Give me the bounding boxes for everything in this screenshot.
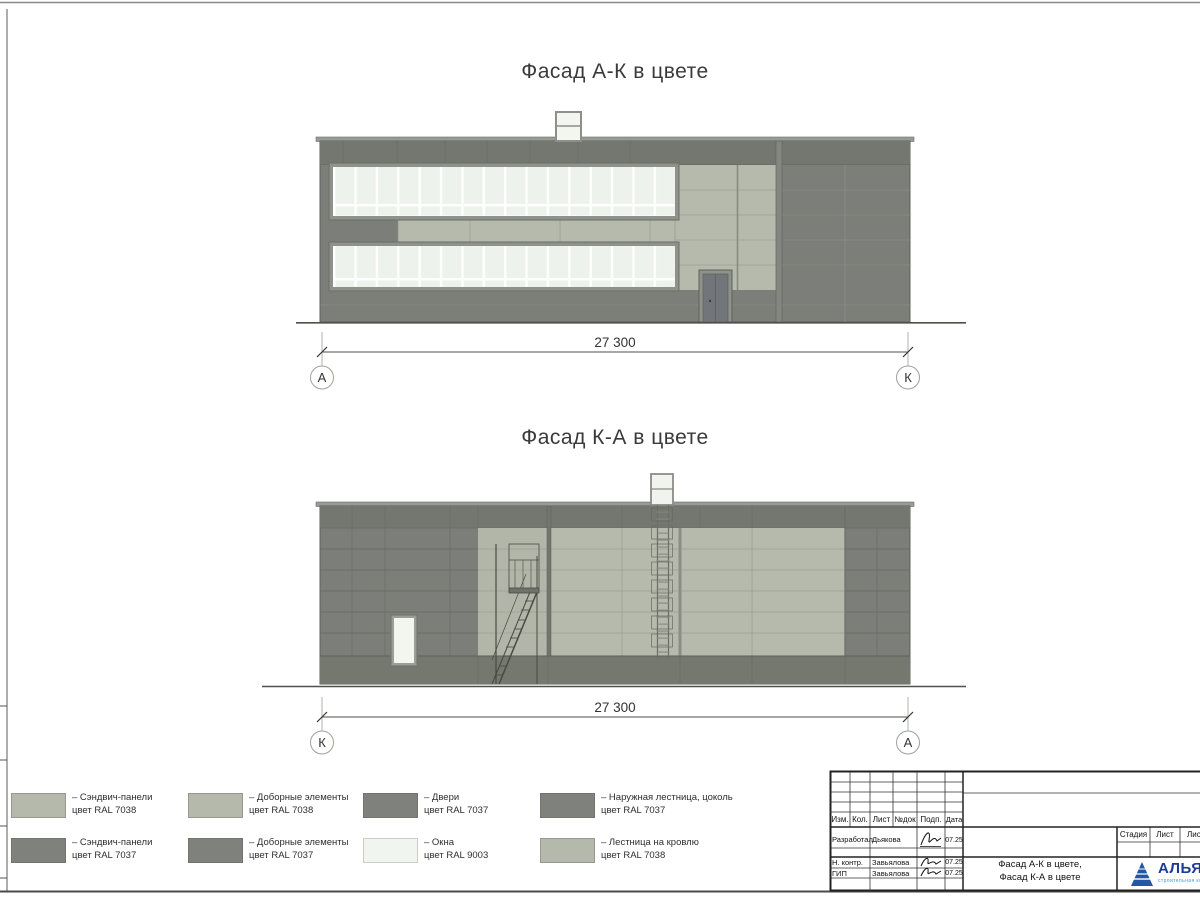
- legend-label-line1: – Окна: [424, 836, 488, 849]
- company-name: АЛЬЯНС: [1158, 860, 1200, 877]
- facade1-top-band: [320, 141, 910, 165]
- tb-name-developer: Дьякова: [872, 835, 901, 844]
- facade-2-drawing: [262, 474, 966, 687]
- drawing-sheet: 27 300 А К: [0, 0, 1200, 900]
- legend-label: – Окнацвет RAL 9003: [424, 836, 488, 862]
- legend-label: – Дверицвет RAL 7037: [424, 791, 488, 817]
- facade1-lower-window: [329, 242, 679, 291]
- legend-label-line2: цвет RAL 9003: [424, 849, 488, 862]
- tb-drawing-title-line1: Фасад А-К в цвете,: [963, 859, 1117, 870]
- tb-name-ncontrol: Завьялова: [872, 858, 909, 867]
- facade2-dimension: 27 300 К А: [311, 697, 920, 754]
- tb-role-gip: ГИП: [832, 869, 847, 878]
- facade1-title: Фасад А-К в цвете: [320, 60, 910, 84]
- signature-icon: [920, 833, 941, 876]
- facade1-column-strip: [776, 141, 782, 322]
- legend-label: – Доборные элементыцвет RAL 7037: [249, 836, 348, 862]
- tb-name-gip: Завьялова: [872, 869, 909, 878]
- tb-drawing-title-line2: Фасад К-А в цвете: [963, 872, 1117, 883]
- legend-label: – Лестница на кровлюцвет RAL 7038: [601, 836, 699, 862]
- facade-1-drawing: [296, 112, 966, 323]
- tb-col-izm: Изм.: [830, 815, 850, 824]
- tb-sheet-label: Лист: [1150, 830, 1180, 839]
- legend-label-line1: – Лестница на кровлю: [601, 836, 699, 849]
- tb-role-ncontrol: Н. контр.: [832, 858, 863, 867]
- company-logo-icon: [1131, 862, 1153, 886]
- legend-label-line1: – Наружная лестница, цоколь: [601, 791, 733, 804]
- tb-col-ndok: №док: [893, 815, 917, 824]
- legend-label-line2: цвет RAL 7038: [72, 804, 152, 817]
- facade1-upper-window: [329, 163, 679, 220]
- legend-swatch: [11, 793, 66, 818]
- tb-col-podp: Подп.: [917, 815, 945, 824]
- tb-date-gip: 07.25: [945, 870, 963, 877]
- legend-swatch: [363, 838, 418, 863]
- legend-label: – Сэндвич-панелицвет RAL 7038: [72, 791, 152, 817]
- legend-label-line2: цвет RAL 7037: [249, 849, 348, 862]
- tb-date-ncontrol: 07.25: [945, 859, 963, 866]
- legend-label-line1: – Сэндвич-панели: [72, 836, 152, 849]
- fold-marks: [0, 706, 7, 878]
- facade2-top-band: [320, 506, 910, 528]
- legend-label-line2: цвет RAL 7038: [601, 849, 699, 862]
- axis-letter-a2: А: [904, 735, 913, 750]
- tb-col-kol: Кол.: [850, 815, 870, 824]
- facade1-roof-hatch: [556, 112, 581, 141]
- legend-swatch: [540, 838, 595, 863]
- legend-label-line2: цвет RAL 7038: [249, 804, 348, 817]
- legend-label-line2: цвет RAL 7037: [601, 804, 733, 817]
- facade2-dim-label: 27 300: [594, 700, 635, 715]
- axis-letter-a1: А: [318, 370, 327, 385]
- axis-letter-k1: К: [904, 370, 912, 385]
- facade1-mid-band: [398, 218, 675, 243]
- legend-swatch: [540, 793, 595, 818]
- legend-label-line1: – Двери: [424, 791, 488, 804]
- axis-letter-k2: К: [318, 735, 326, 750]
- tb-role-developer: Разработал: [832, 835, 873, 844]
- drawing-canvas: 27 300 А К: [0, 0, 1200, 900]
- company-subtitle: строительная компания: [1158, 878, 1200, 884]
- facade2-title: Фасад К-А в цвете: [320, 426, 910, 450]
- facade1-dimension: 27 300 А К: [311, 332, 920, 389]
- tb-sheets-label: Листов: [1180, 830, 1200, 839]
- legend-label: – Наружная лестница, цокольцвет RAL 7037: [601, 791, 733, 817]
- legend-label-line2: цвет RAL 7037: [424, 804, 488, 817]
- tb-col-data: Дата: [945, 815, 963, 824]
- facade1-door: [699, 270, 732, 322]
- legend-label: – Сэндвич-панелицвет RAL 7037: [72, 836, 152, 862]
- legend-swatch: [188, 838, 243, 863]
- tb-date-developer: 07.25: [945, 837, 963, 844]
- legend-label-line1: – Доборные элементы: [249, 836, 348, 849]
- facade1-dim-label: 27 300: [594, 335, 635, 350]
- legend-label-line2: цвет RAL 7037: [72, 849, 152, 862]
- legend-label-line1: – Доборные элементы: [249, 791, 348, 804]
- legend-swatch: [11, 838, 66, 863]
- legend-swatch: [188, 793, 243, 818]
- tb-stage-label: Стадия: [1117, 830, 1150, 839]
- facade2-light-panels: [550, 528, 845, 656]
- tb-col-list: Лист: [870, 815, 893, 824]
- facade2-window: [391, 615, 417, 666]
- legend-label-line1: – Сэндвич-панели: [72, 791, 152, 804]
- legend-label: – Доборные элементыцвет RAL 7038: [249, 791, 348, 817]
- legend-swatch: [363, 793, 418, 818]
